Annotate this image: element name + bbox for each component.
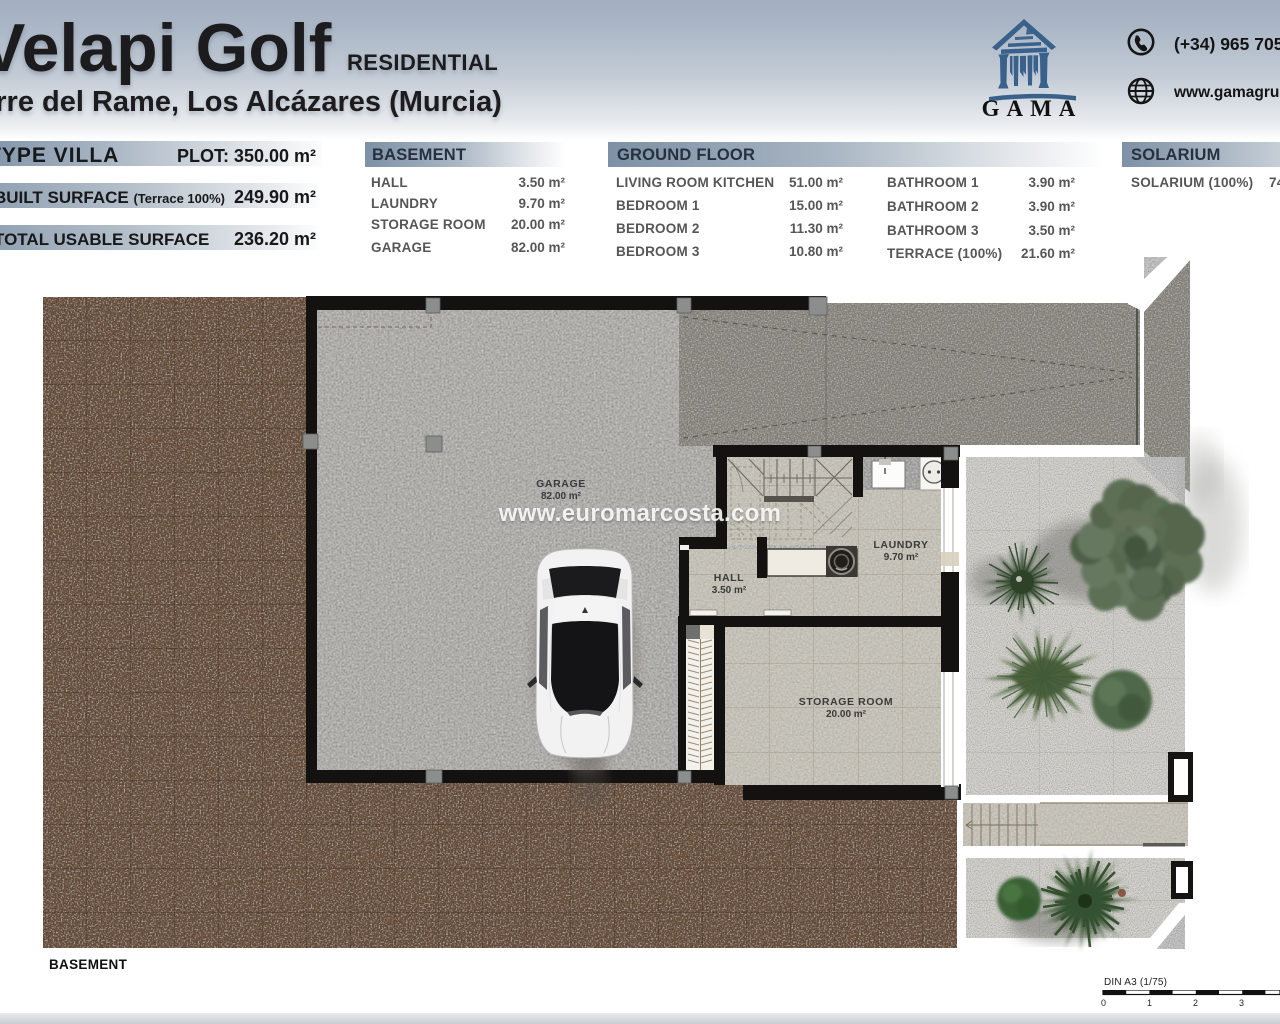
svg-text:HALL: HALL (714, 572, 744, 584)
svg-text:GARAGE: GARAGE (536, 478, 586, 490)
svg-text:STORAGE ROOM: STORAGE ROOM (799, 696, 894, 708)
svg-text:0: 0 (1101, 998, 1106, 1008)
svg-text:3.50 m²: 3.50 m² (712, 585, 747, 596)
svg-text:9.70 m²: 9.70 m² (884, 552, 919, 563)
svg-text:3: 3 (1239, 998, 1244, 1008)
svg-text:20.00 m²: 20.00 m² (826, 709, 867, 720)
svg-text:1: 1 (1147, 998, 1152, 1008)
svg-text:LAUNDRY: LAUNDRY (873, 539, 928, 551)
svg-text:2: 2 (1193, 998, 1198, 1008)
